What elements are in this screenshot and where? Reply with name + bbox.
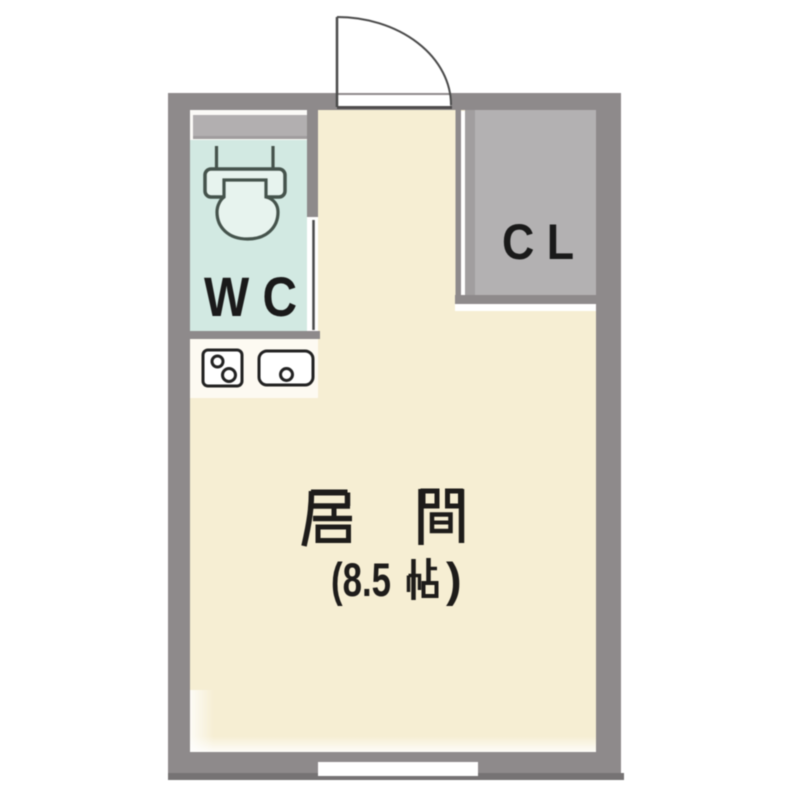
svg-text:W C: W C [204, 265, 297, 328]
svg-text:): ) [446, 553, 462, 606]
svg-text:C L: C L [502, 214, 574, 270]
svg-text:(8.5: (8.5 [331, 553, 391, 606]
